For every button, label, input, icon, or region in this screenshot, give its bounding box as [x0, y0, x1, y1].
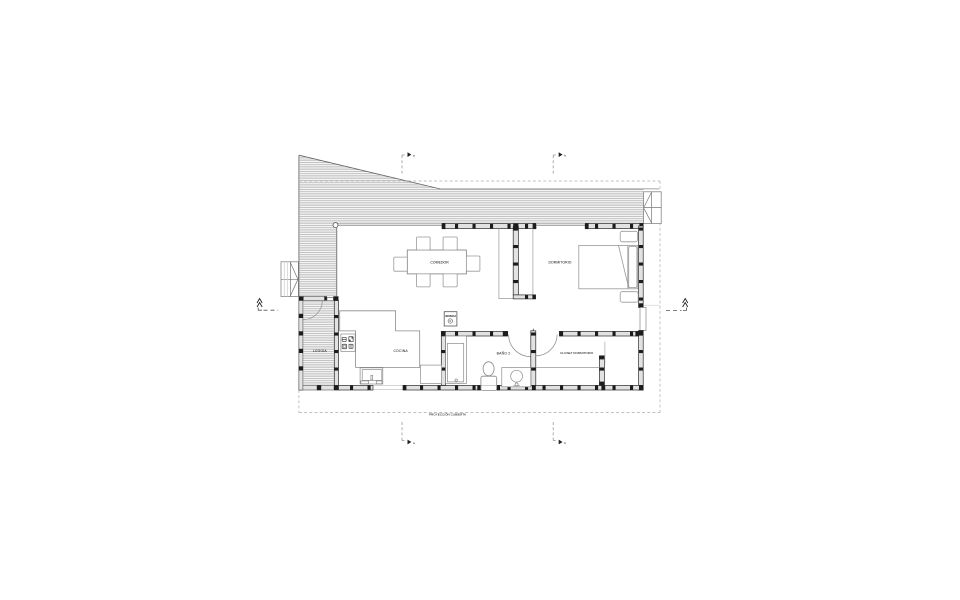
svg-text:BAÑO 2: BAÑO 2	[497, 350, 511, 355]
svg-text:COMEDOR: COMEDOR	[430, 261, 449, 265]
svg-text:COCINA: COCINA	[394, 349, 409, 353]
svg-text:PROYECCIÓN CUBIERTA: PROYECCIÓN CUBIERTA	[429, 412, 467, 417]
svg-text:DORMITORIO: DORMITORIO	[549, 261, 572, 265]
svg-text:LOGGIA: LOGGIA	[313, 349, 328, 353]
svg-text:BOSCH: BOSCH	[446, 314, 456, 318]
svg-text:CLOSET DORMITORIO: CLOSET DORMITORIO	[560, 351, 594, 355]
